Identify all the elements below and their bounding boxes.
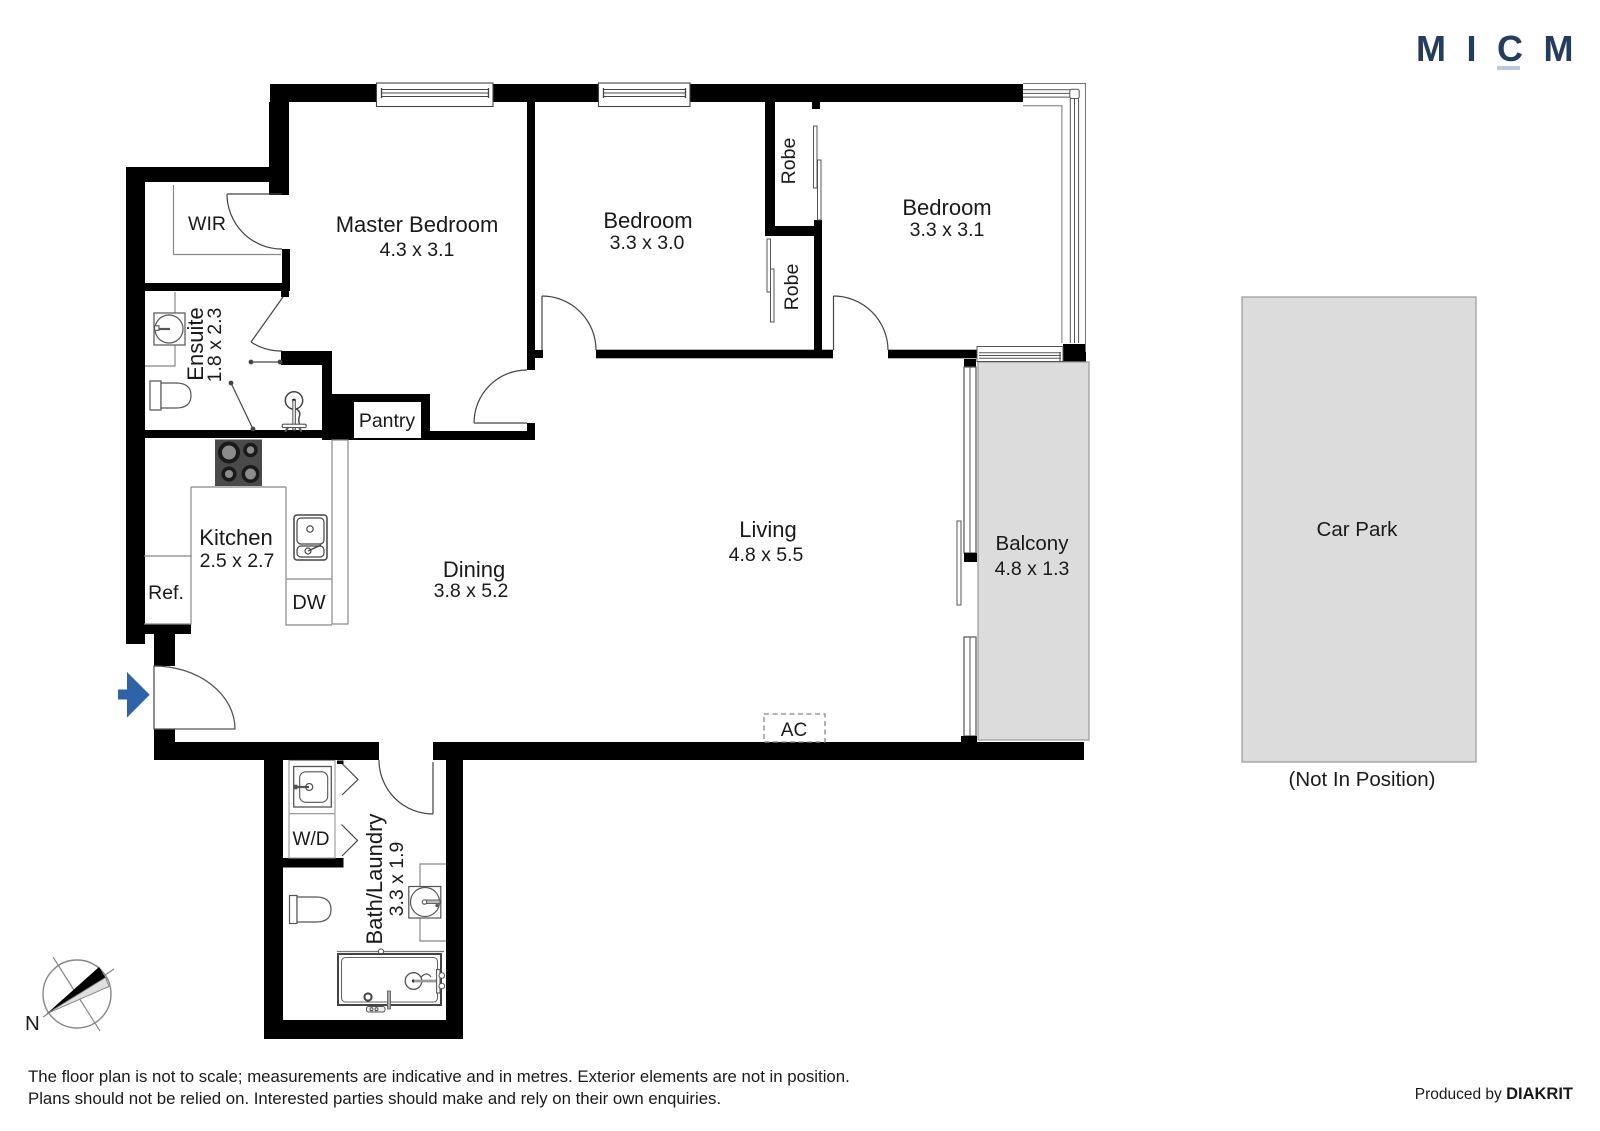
svg-text:W/D: W/D	[293, 829, 330, 850]
svg-text:1.8 x 2.3: 1.8 x 2.3	[204, 308, 226, 383]
svg-text:Bedroom: Bedroom	[902, 195, 991, 220]
svg-text:Plans should not be relied on.: Plans should not be relied on. Intereste…	[28, 1089, 721, 1108]
svg-text:The floor plan is not to scale: The floor plan is not to scale; measurem…	[28, 1067, 850, 1086]
svg-text:WIR: WIR	[188, 213, 226, 235]
svg-text:Pantry: Pantry	[359, 410, 416, 432]
svg-text:Living: Living	[739, 517, 796, 542]
svg-text:Car Park: Car Park	[1317, 518, 1399, 541]
svg-text:AC: AC	[781, 720, 807, 741]
svg-text:Ref.: Ref.	[148, 582, 184, 604]
svg-text:(Not In Position): (Not In Position)	[1289, 768, 1436, 791]
svg-text:MICM: MICM	[1416, 28, 1594, 69]
svg-text:Bedroom: Bedroom	[603, 208, 692, 233]
svg-text:Kitchen: Kitchen	[199, 525, 272, 550]
svg-text:Master Bedroom: Master Bedroom	[336, 212, 499, 237]
svg-text:DW: DW	[292, 592, 325, 614]
svg-text:4.8 x 1.3: 4.8 x 1.3	[995, 558, 1070, 580]
svg-text:3.3 x 3.0: 3.3 x 3.0	[610, 232, 685, 254]
svg-text:3.3 x 3.1: 3.3 x 3.1	[910, 219, 985, 241]
svg-text:4.8 x 5.5: 4.8 x 5.5	[729, 544, 804, 566]
svg-text:Produced by DIAKRIT: Produced by DIAKRIT	[1415, 1085, 1573, 1103]
svg-text:4.3 x 3.1: 4.3 x 3.1	[380, 239, 455, 261]
svg-text:Balcony: Balcony	[996, 532, 1070, 555]
svg-text:Robe: Robe	[778, 138, 800, 185]
svg-text:3.3 x 1.9: 3.3 x 1.9	[386, 842, 408, 917]
svg-text:Dining: Dining	[443, 557, 505, 582]
svg-text:N: N	[25, 1012, 40, 1035]
svg-text:Robe: Robe	[781, 264, 803, 311]
svg-text:3.8 x 5.2: 3.8 x 5.2	[434, 580, 509, 602]
svg-text:2.5 x 2.7: 2.5 x 2.7	[200, 550, 275, 572]
svg-text:Bath/Laundry: Bath/Laundry	[362, 814, 387, 945]
